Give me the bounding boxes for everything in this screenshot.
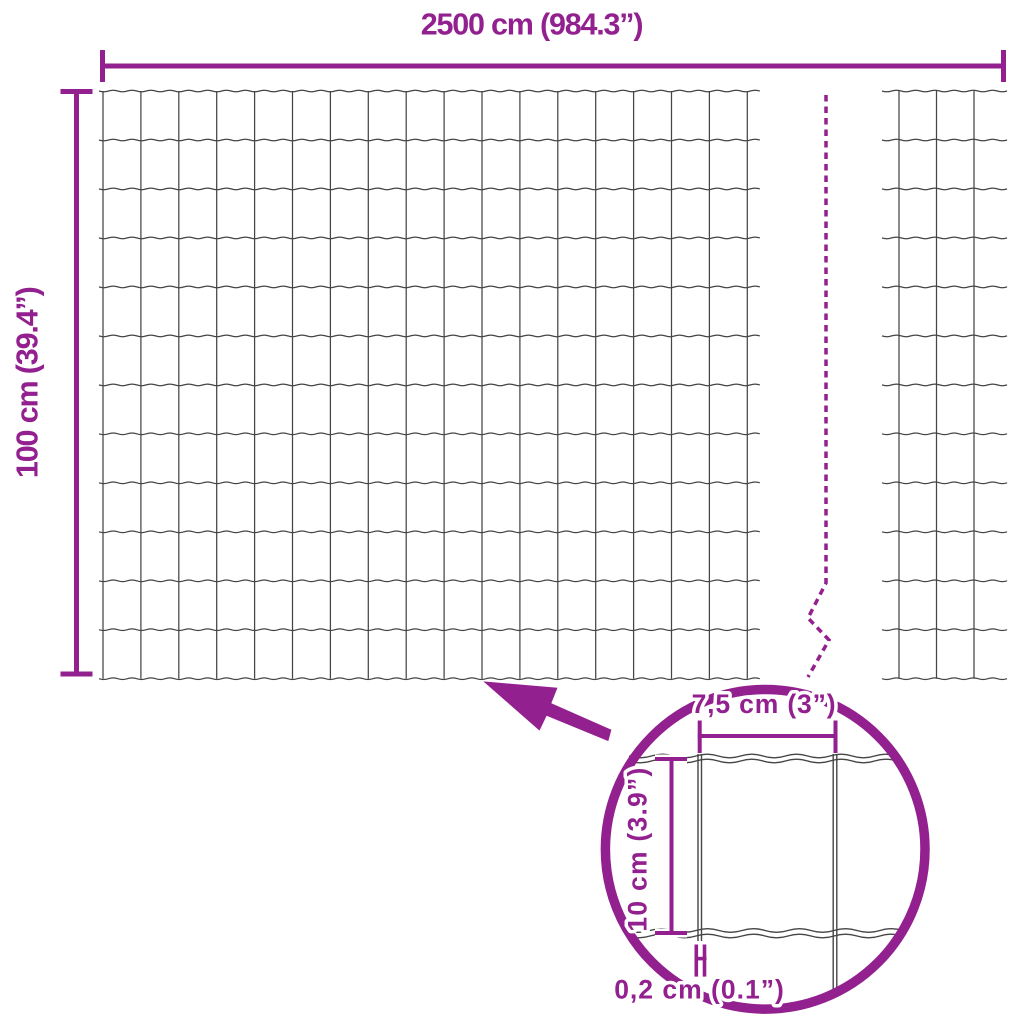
svg-text:2500 cm (984.3”): 2500 cm (984.3”) bbox=[421, 8, 643, 42]
svg-text:100 cm (39.4”): 100 cm (39.4”) bbox=[11, 287, 45, 478]
svg-text:0,2 cm (0.1”): 0,2 cm (0.1”) bbox=[614, 975, 785, 1005]
svg-text:7,5 cm (3”): 7,5 cm (3”) bbox=[692, 689, 837, 719]
svg-text:10 cm (3.9”): 10 cm (3.9”) bbox=[623, 766, 653, 931]
